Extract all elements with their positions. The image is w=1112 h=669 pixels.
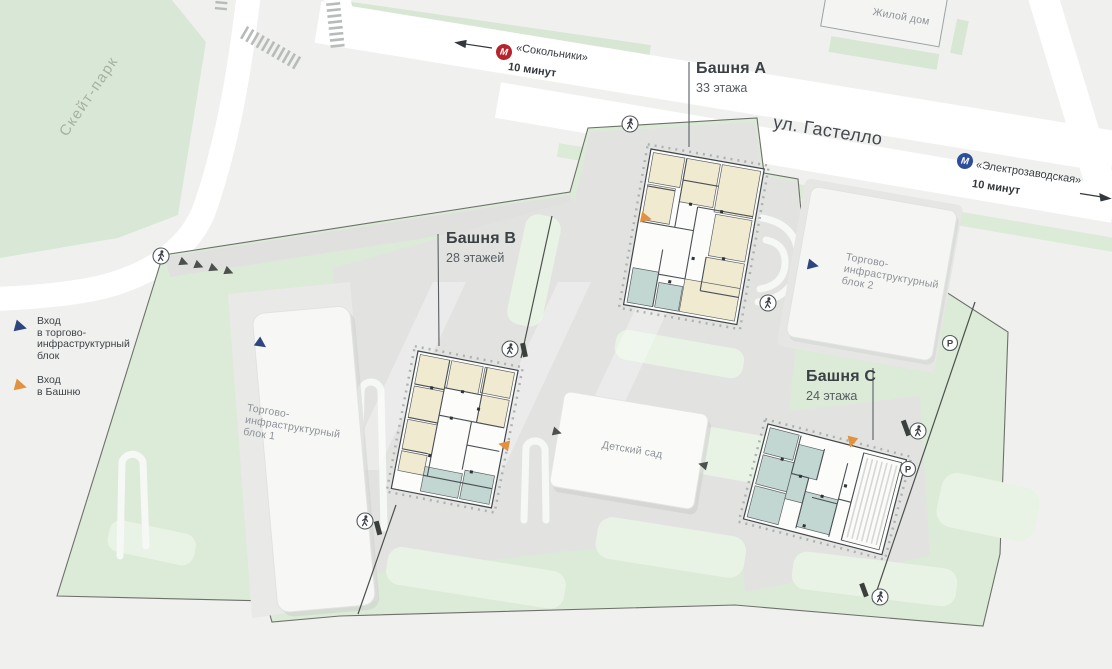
site-plan-canvas: P P Скейт-парк М «Сокольники» 10 минут у… <box>0 0 1112 669</box>
parking-icon: P <box>901 462 916 477</box>
tower-c-name: Башня C <box>806 368 876 386</box>
parking-icon: P <box>943 336 958 351</box>
tower-a-name: Башня A <box>696 60 766 78</box>
pedestrian-icon <box>872 589 888 605</box>
tower-b-name: Башня B <box>446 230 516 248</box>
map-base: P P <box>0 0 1112 669</box>
tower-c-label[interactable]: Башня C 24 этажа <box>806 368 876 403</box>
pedestrian-icon <box>153 248 169 264</box>
pedestrian-icon <box>502 341 518 357</box>
tower-a-label[interactable]: Башня A 33 этажа <box>696 60 766 95</box>
legend-item-retail-entrance: Вход в торгово- инфраструктурный блок <box>37 316 130 362</box>
tower-c-floors: 24 этажа <box>806 389 876 403</box>
tower-b-label[interactable]: Башня B 28 этажей <box>446 230 516 265</box>
tower-a-floors: 33 этажа <box>696 81 766 95</box>
pedestrian-icon <box>357 513 373 529</box>
svg-text:P: P <box>905 465 912 476</box>
pedestrian-icon <box>622 116 638 132</box>
pedestrian-icon <box>910 423 926 439</box>
pedestrian-icon <box>760 295 776 311</box>
legend-item-tower-entrance: Вход в Башню <box>37 375 80 398</box>
tower-b-floors: 28 этажей <box>446 251 516 265</box>
svg-text:P: P <box>947 339 954 350</box>
